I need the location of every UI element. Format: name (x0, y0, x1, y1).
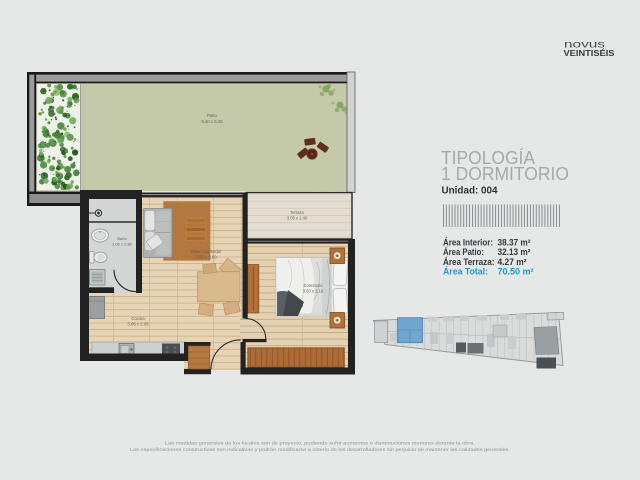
svg-text:1 DORMITORIO: 1 DORMITORIO (441, 163, 569, 184)
svg-text:4.27 m²: 4.27 m² (498, 257, 527, 267)
svg-text:70.50 m²: 70.50 m² (498, 267, 534, 277)
svg-text:Patio: Patio (207, 113, 217, 118)
svg-text:1.00 x 2.80: 1.00 x 2.80 (112, 242, 133, 247)
svg-text:Dormitorio: Dormitorio (304, 283, 324, 288)
svg-text:Cocina: Cocina (131, 316, 145, 321)
svg-text:3.60 x 3.16: 3.60 x 3.16 (303, 289, 324, 294)
svg-text:Área Total:: Área Total: (443, 267, 488, 277)
svg-text:Unidad: 004: Unidad: 004 (442, 186, 498, 197)
svg-text:38.37 m²: 38.37 m² (498, 238, 531, 248)
svg-text:VEINTISÉIS: VEINTISÉIS (564, 49, 615, 58)
svg-text:Terraza: Terraza (290, 210, 304, 215)
svg-text:Estar / Comedor: Estar / Comedor (190, 249, 222, 254)
svg-text:9.40 x 5.25: 9.40 x 5.25 (201, 119, 223, 124)
svg-text:Área Terraza:: Área Terraza: (443, 257, 495, 267)
svg-text:32.13 m²: 32.13 m² (498, 247, 531, 257)
svg-text:3.05 x 2.05: 3.05 x 2.05 (127, 322, 149, 327)
svg-text:Área Patio:: Área Patio: (443, 247, 484, 257)
svg-text:Baño: Baño (117, 236, 127, 241)
svg-text:3.05 x 3.60: 3.05 x 3.60 (195, 255, 217, 260)
svg-text:Las medidas generales de los l: Las medidas generales de los locales son… (165, 441, 475, 446)
svg-text:Las especificaciones construct: Las especificaciones constructivas son i… (130, 447, 510, 452)
svg-text:Área Interior:: Área Interior: (443, 238, 493, 248)
svg-text:3.05 x 1.40: 3.05 x 1.40 (287, 216, 308, 221)
